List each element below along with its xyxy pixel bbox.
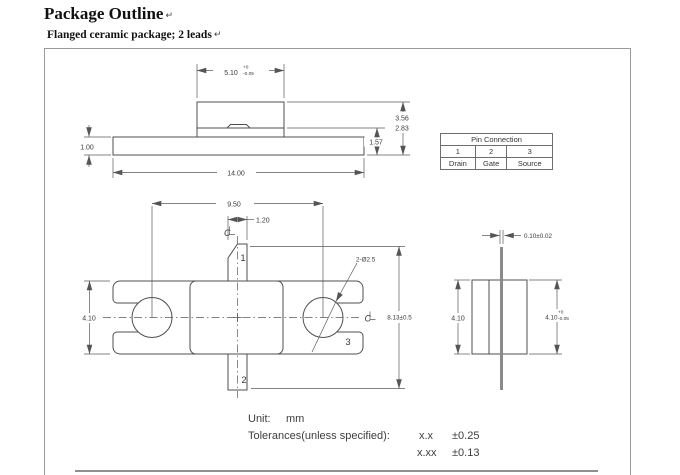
centerline-icon: C xyxy=(224,227,235,239)
pin2-label: 2 xyxy=(241,375,246,386)
pin-number-cell: 2 xyxy=(475,146,507,158)
dim-flange-thickness: 1.00 xyxy=(74,125,111,167)
dim-flange-length-label: 14.00 xyxy=(227,171,245,178)
dim-cap-width-tol-plus: +0 xyxy=(243,65,249,71)
dim-hole-pitch: 9.50 xyxy=(152,197,323,209)
dim-lead-width: 1.20 xyxy=(228,216,270,240)
dim-lead-height-label: 1.57 xyxy=(369,140,383,147)
pin-table-title: Pin Connection xyxy=(441,134,553,146)
dim-side-body-width-tol-plus: +0 xyxy=(558,310,564,316)
dim-height-total-label: 3.56 xyxy=(395,116,409,123)
dim-cap-width-tol-minus: -0.05 xyxy=(243,71,254,77)
pin-function-cell: Drain xyxy=(441,158,476,170)
dim-side-height: 4.10 xyxy=(445,280,471,354)
dim-flange-length: 14.00 xyxy=(113,158,364,178)
pin-number-cell: 3 xyxy=(507,146,553,158)
dim-lead-thickness-label: 0.10±0.02 xyxy=(524,233,552,240)
dim-lead-width-label: 1.20 xyxy=(256,218,270,225)
dim-height-seal-label: 2.83 xyxy=(395,126,409,133)
technical-drawing: 5.10 +0 -0.05 3.56 2.83 1.57 xyxy=(0,0,680,475)
pin-function-cell: Source xyxy=(507,158,553,170)
front-view: 5.10 +0 -0.05 3.56 2.83 1.57 xyxy=(74,62,416,178)
seal-ring-front xyxy=(197,128,284,137)
hole-callout-label: 2-Ø2.5 xyxy=(356,257,376,264)
pin1-label: 1 xyxy=(240,253,245,264)
svg-text:C: C xyxy=(224,228,231,238)
section-divider xyxy=(75,470,598,472)
side-view: 0.10±0.02 4.10 4.10 +0 -0.05 xyxy=(445,230,572,390)
datasheet-page: Package Outline↵ Flanged ceramic package… xyxy=(0,0,680,475)
dim-lead-thickness: 0.10±0.02 xyxy=(482,233,552,240)
pin-function-cell: Gate xyxy=(475,158,507,170)
dim-cap-width: 5.10 +0 -0.05 xyxy=(197,62,284,98)
body-side xyxy=(472,280,527,354)
dim-side-body-width: 4.10 +0 -0.05 xyxy=(529,280,572,354)
dim-heights: 3.56 2.83 xyxy=(287,102,416,155)
dim-hole-pitch-label: 9.50 xyxy=(227,202,241,209)
dim-side-height-label: 4.10 xyxy=(451,316,465,323)
pin-connection-table: Pin Connection 1 2 3 Drain Gate Source xyxy=(440,133,553,170)
dim-side-body-width-tol-minus: -0.05 xyxy=(558,316,569,322)
lead-tab-front xyxy=(227,125,250,129)
bottom-view: 1.20 C 1 2 3 9.50 2-Ø2.5 xyxy=(76,197,416,398)
center-mark xyxy=(233,313,242,322)
dim-flange-width-label: 4.10 xyxy=(82,316,96,323)
pin-number-cell: 1 xyxy=(441,146,476,158)
svg-text:C: C xyxy=(365,314,372,324)
dim-side-body-width-label: 4.10 xyxy=(545,315,558,322)
dim-cap-width-label: 5.10 xyxy=(224,70,238,77)
dim-lead-tip-span-label: 8.13±0.5 xyxy=(387,315,412,322)
flange-front xyxy=(113,137,364,155)
pin3-label: 3 xyxy=(345,337,350,348)
dim-lead-height: 1.57 xyxy=(364,128,388,155)
dim-flange-thickness-label: 1.00 xyxy=(80,145,94,152)
centerline-icon: C xyxy=(365,312,376,324)
